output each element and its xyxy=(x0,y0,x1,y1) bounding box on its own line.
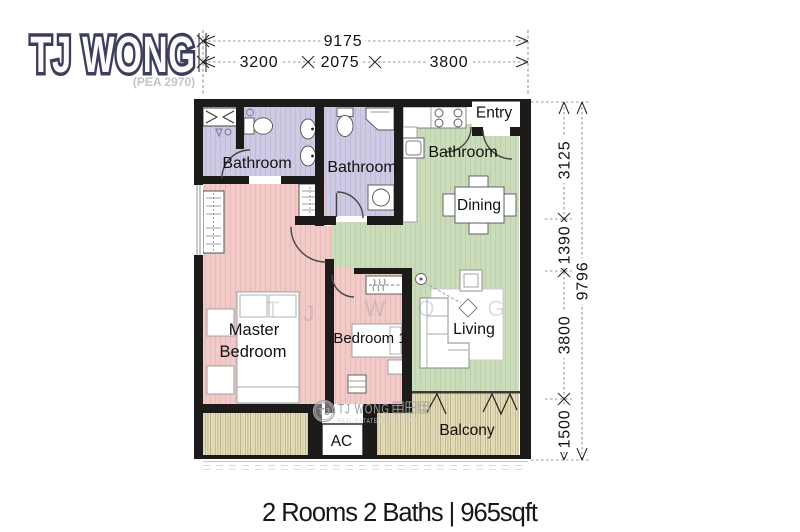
svg-text:Entry: Entry xyxy=(476,105,512,122)
svg-text:Living: Living xyxy=(453,321,495,338)
svg-text:TJ WONG: TJ WONG xyxy=(338,401,390,417)
svg-text:2075: 2075 xyxy=(321,54,360,71)
svg-text:Bathroom: Bathroom xyxy=(327,159,396,176)
svg-text:Balcony: Balcony xyxy=(439,422,494,439)
svg-text:TJ: TJ xyxy=(318,406,330,418)
svg-text:(PEA 2970): (PEA 2970) xyxy=(133,75,195,89)
svg-text:3800: 3800 xyxy=(557,316,574,355)
svg-text:9175: 9175 xyxy=(324,33,363,50)
svg-text:Bathroom: Bathroom xyxy=(222,155,291,172)
svg-text:3200: 3200 xyxy=(240,54,279,71)
svg-text:O: O xyxy=(417,296,434,321)
svg-text:T: T xyxy=(266,297,279,322)
svg-text:REAL ESTATE PROFESSIONAL: REAL ESTATE PROFESSIONAL xyxy=(338,418,426,425)
svg-text:AC: AC xyxy=(331,433,353,450)
svg-text:W: W xyxy=(365,296,386,321)
svg-text:1500: 1500 xyxy=(557,410,574,449)
svg-text:G: G xyxy=(487,296,504,321)
svg-text:Bedroom 1: Bedroom 1 xyxy=(333,330,406,347)
svg-text:3125: 3125 xyxy=(557,141,574,180)
svg-text:Bedroom: Bedroom xyxy=(220,343,287,361)
svg-text:Dining: Dining xyxy=(457,197,501,214)
svg-text:2 Rooms 2 Baths | 965sqft: 2 Rooms 2 Baths | 965sqft xyxy=(262,499,538,527)
svg-text:Master: Master xyxy=(229,321,280,339)
svg-text:3800: 3800 xyxy=(430,54,469,71)
svg-text:1390: 1390 xyxy=(557,226,574,265)
svg-text:Bathroom: Bathroom xyxy=(428,144,497,161)
svg-text:J: J xyxy=(304,301,315,326)
svg-text:9796: 9796 xyxy=(575,262,592,301)
